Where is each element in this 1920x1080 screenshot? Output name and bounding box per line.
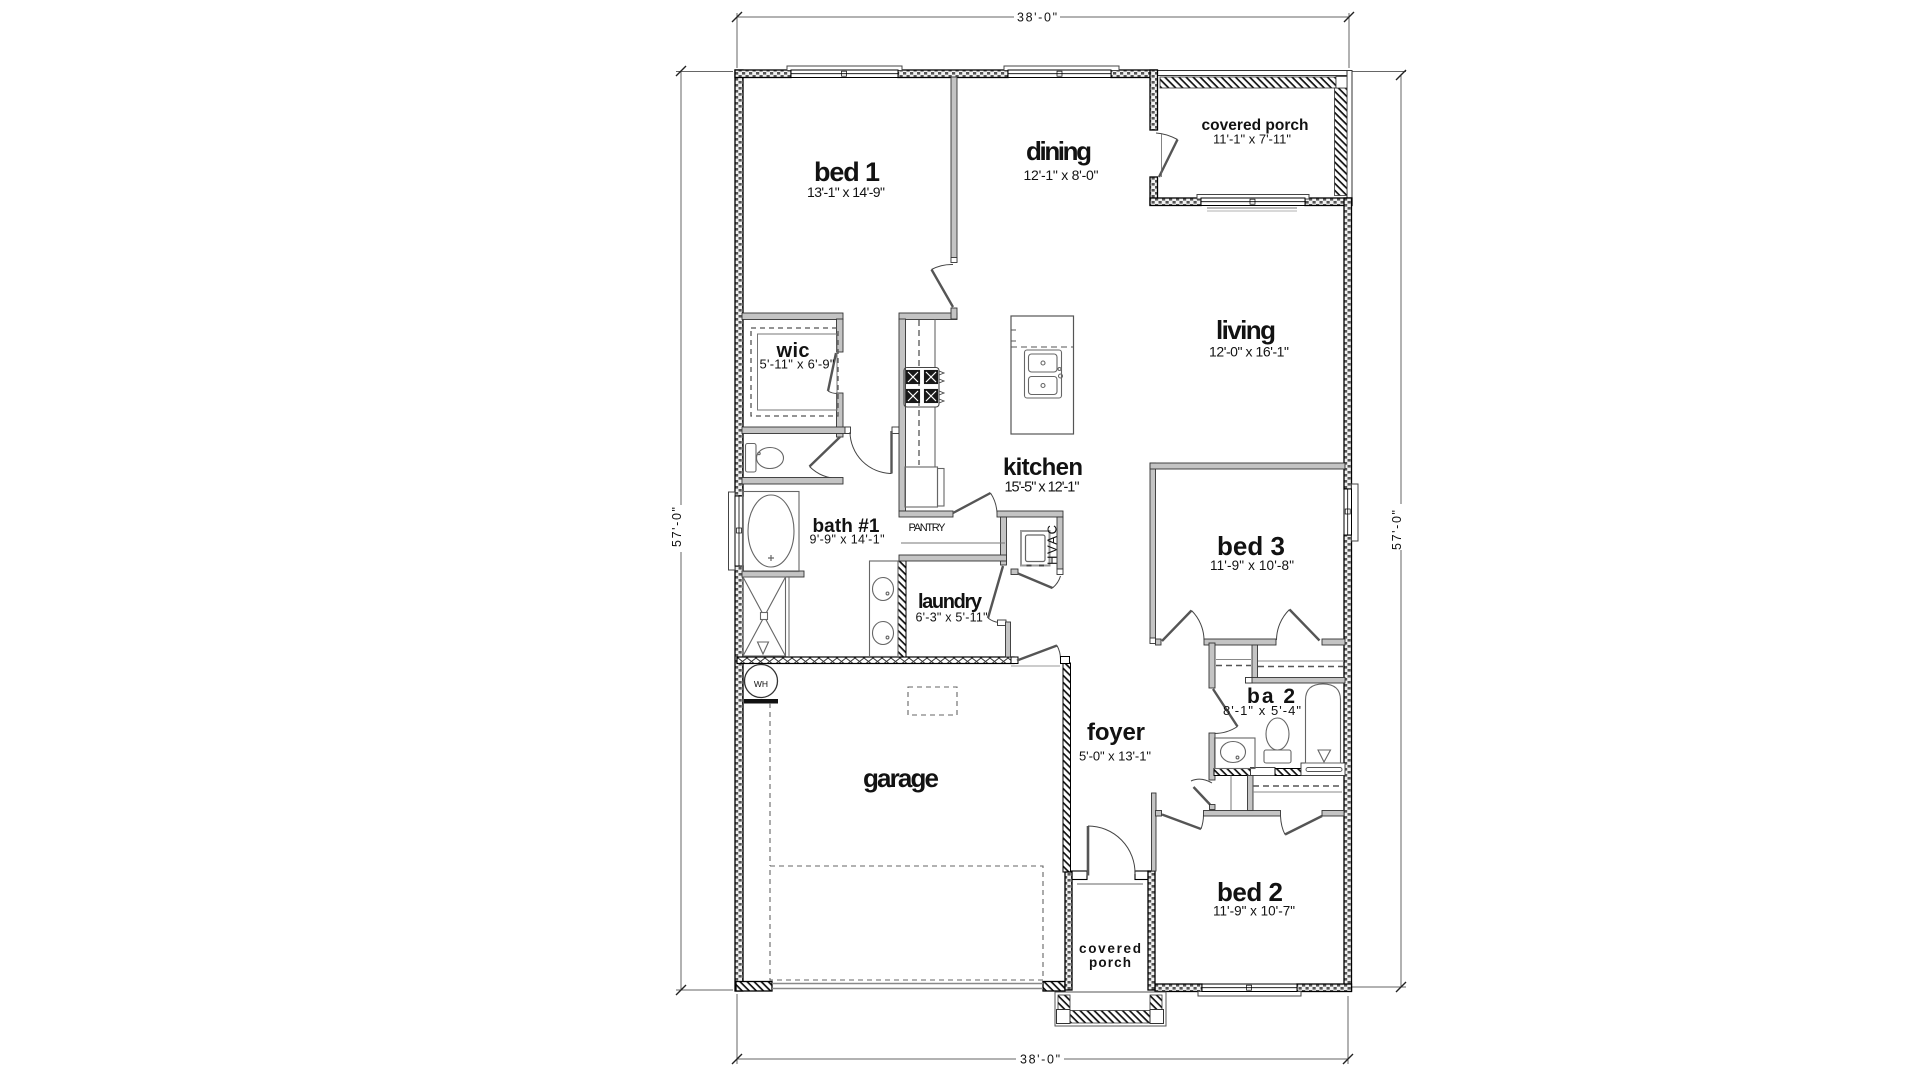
svg-text:11'-9" x 10'-8": 11'-9" x 10'-8" [1210,558,1294,573]
svg-text:11'-1" x 7'-11": 11'-1" x 7'-11" [1213,132,1291,147]
svg-text:bed 3: bed 3 [1217,531,1285,561]
svg-text:8'-1" x 5'-4": 8'-1" x 5'-4" [1223,703,1301,718]
svg-text:kitchen: kitchen [1003,454,1083,481]
svg-text:6'-3" x 5'-11": 6'-3" x 5'-11" [916,611,988,625]
svg-text:foyer: foyer [1087,719,1145,746]
svg-text:dining: dining [1026,136,1092,166]
svg-text:13'-1" x 14'-9": 13'-1" x 14'-9" [807,184,885,200]
svg-text:bed 2: bed 2 [1217,877,1283,907]
svg-text:porch: porch [1089,955,1131,970]
svg-text:PANTRY: PANTRY [909,522,947,534]
svg-text:12'-1" x 8'-0": 12'-1" x 8'-0" [1024,167,1099,183]
svg-text:11'-9" x 10'-7": 11'-9" x 10'-7" [1213,904,1295,919]
svg-text:WH: WH [754,679,768,689]
svg-text:9'-9" x 14'-1": 9'-9" x 14'-1" [810,533,885,547]
svg-text:living: living [1216,315,1276,345]
svg-text:5'-11" x 6'-9": 5'-11" x 6'-9" [760,357,835,372]
svg-text:HVAC: HVAC [1045,525,1060,565]
svg-text:garage: garage [863,763,939,793]
svg-text:bed 1: bed 1 [814,157,880,187]
svg-text:5'-0" x 13'-1": 5'-0" x 13'-1" [1079,749,1151,764]
svg-text:15'-5" x 12'-1": 15'-5" x 12'-1" [1005,480,1080,496]
svg-text:12'-0" x 16'-1": 12'-0" x 16'-1" [1209,344,1289,360]
